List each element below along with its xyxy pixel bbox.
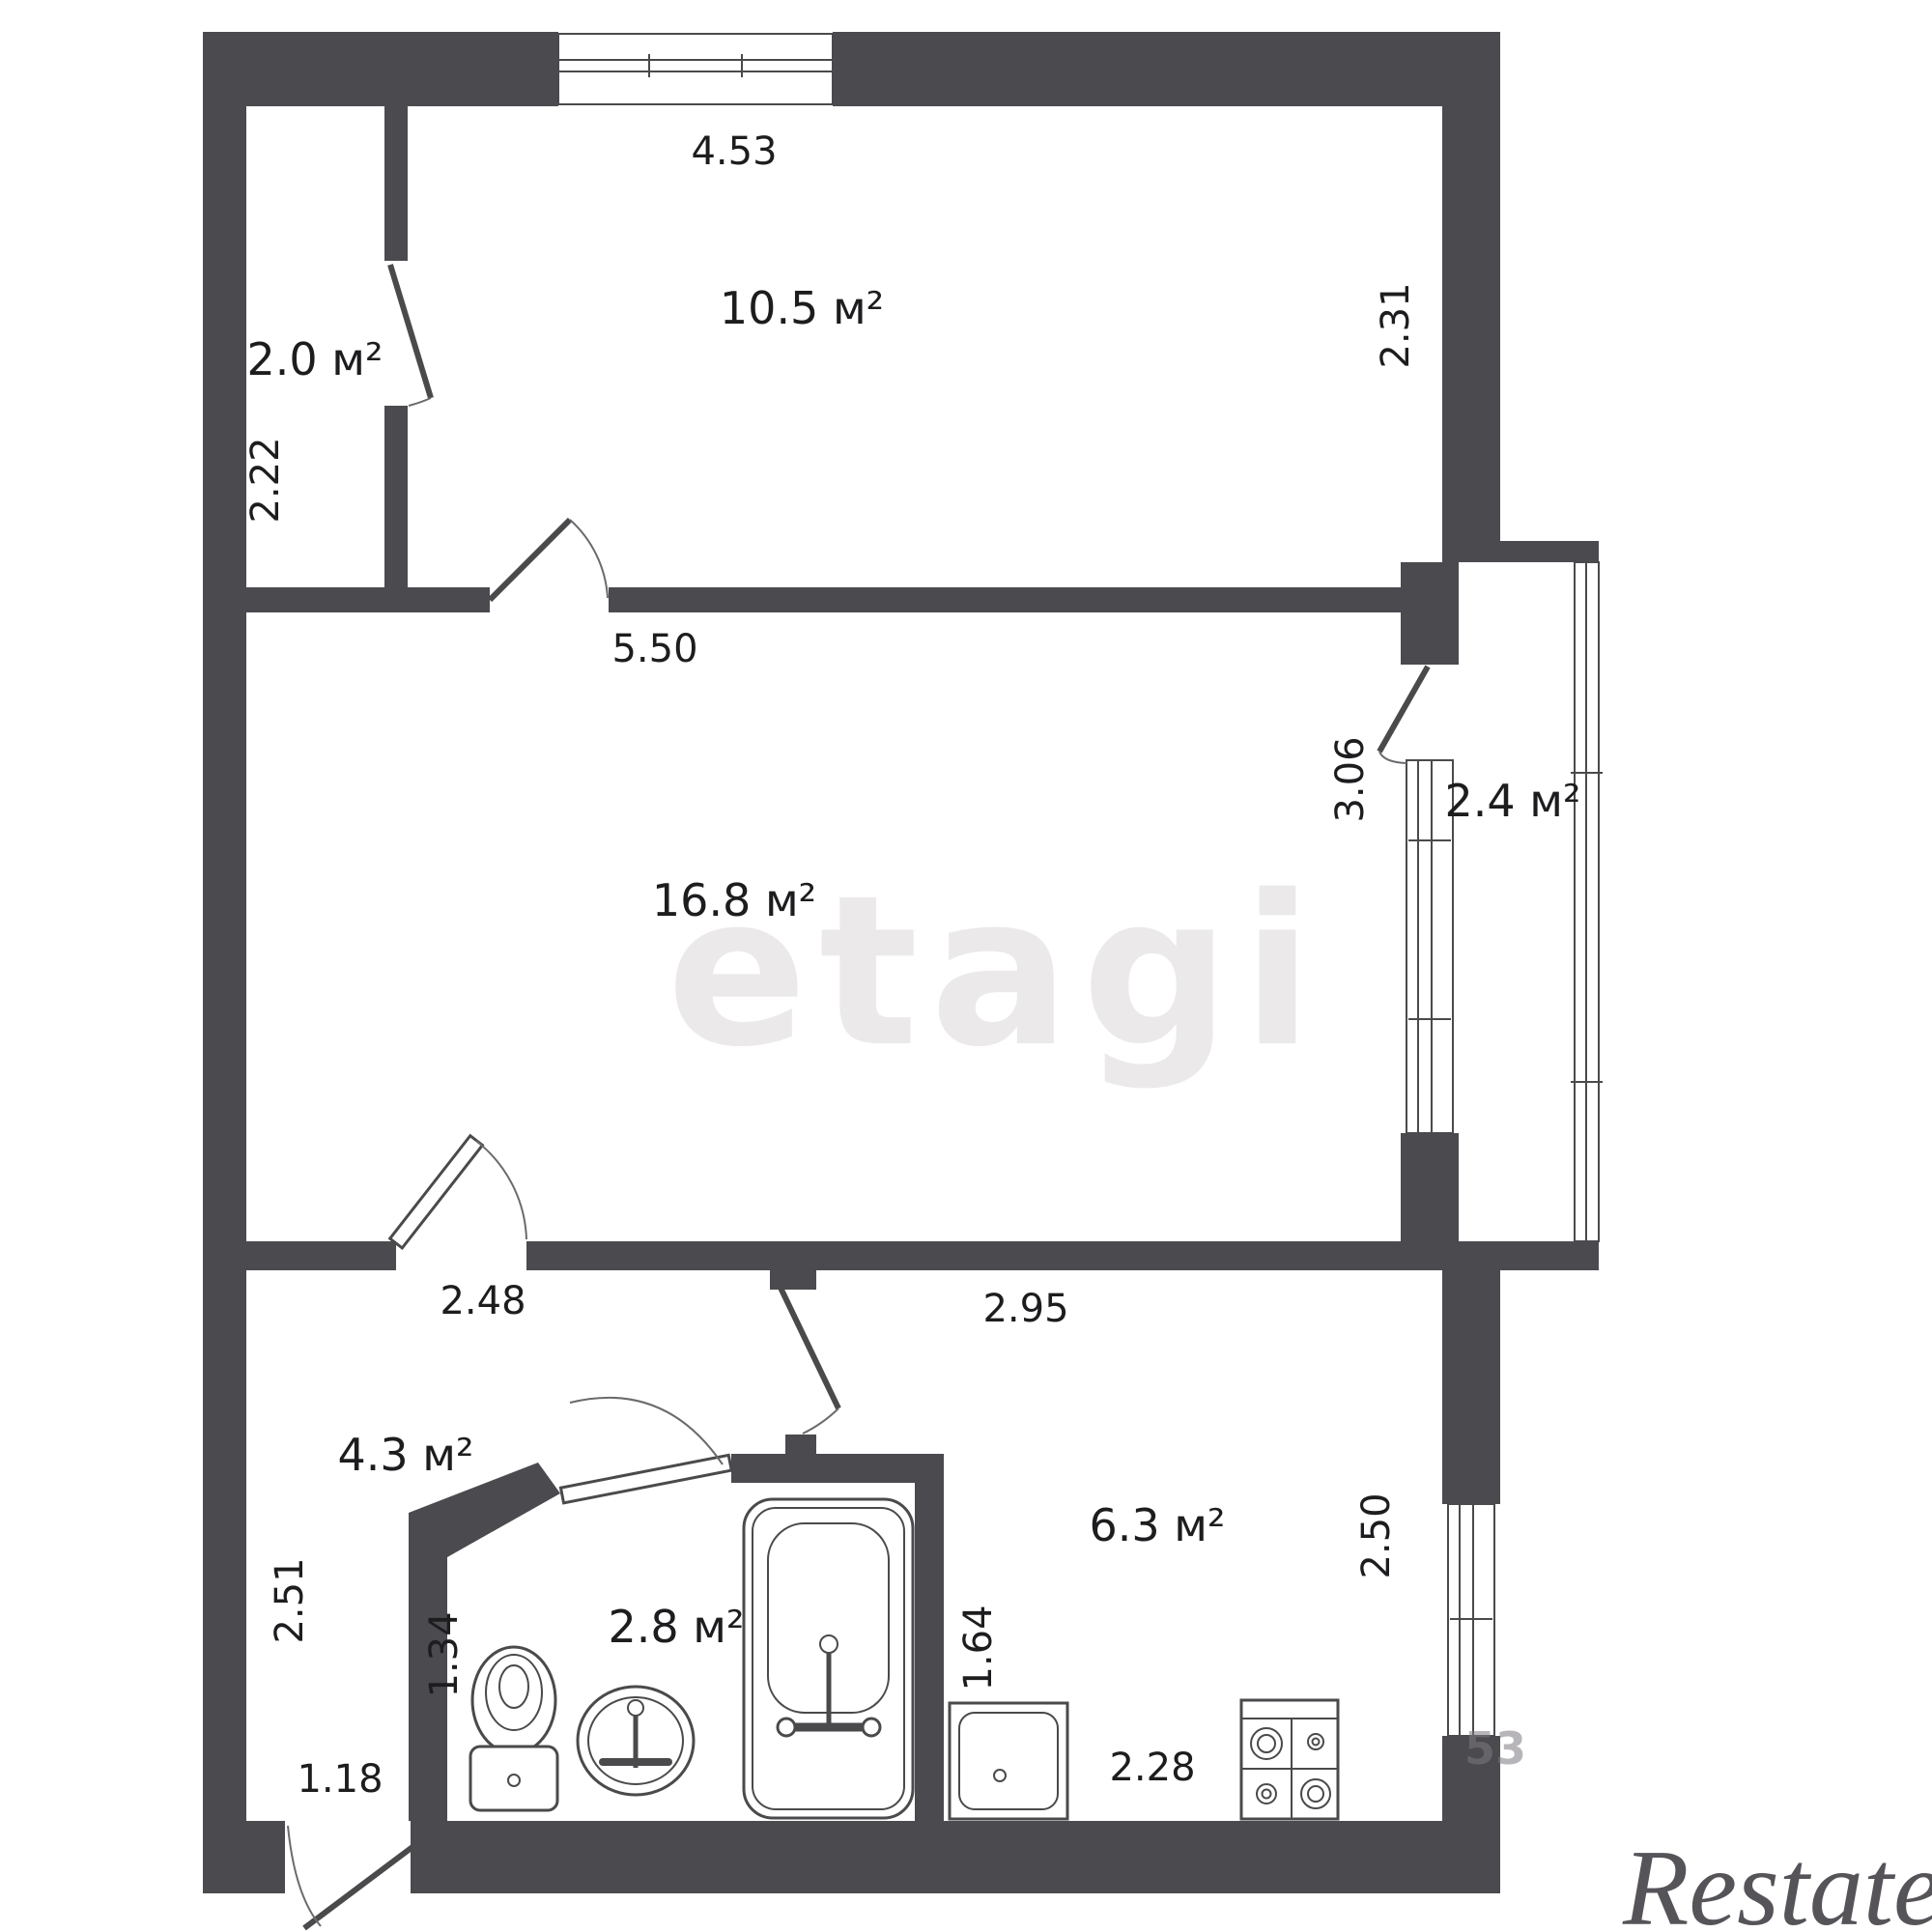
wall-right-exterior-upper [1442, 32, 1500, 562]
wall-closet-divider-lower [384, 406, 408, 587]
wall-kitchen-right-upper [1442, 1270, 1500, 1504]
wall-bottom-left [203, 1821, 285, 1893]
bathtub-icon [744, 1499, 913, 1818]
wall-top-left-segment [203, 32, 558, 106]
room-label-balcony: 2.4 м² [1445, 775, 1581, 827]
watermark-digits: 53 [1464, 1722, 1526, 1775]
dim-hall-left-height: 2.51 [268, 1557, 312, 1643]
floor-plan: etagi [0, 0, 1932, 1932]
wall-closet-divider-upper [384, 106, 408, 261]
dim-living-width: 5.50 [611, 627, 697, 671]
wall-balcony-pillar-lower [1401, 1133, 1459, 1241]
wall-mid2-right [526, 1241, 1456, 1270]
wall-balcony-pillar-upper [1401, 562, 1459, 665]
dim-kitchen-right-height: 2.50 [1354, 1492, 1399, 1578]
wall-mid1-right [609, 587, 1456, 612]
dim-top-width: 4.53 [691, 129, 777, 174]
room-label-living: 16.8 м² [652, 874, 816, 926]
dim-entrance-width: 1.18 [297, 1757, 383, 1802]
dim-bedroom-right: 2.31 [1374, 282, 1418, 368]
wall-mid2-left [246, 1241, 396, 1270]
wall-bottom-main [411, 1821, 1500, 1893]
dim-kitchen-left-height: 1.64 [956, 1605, 1001, 1690]
kitchen-sink-icon [950, 1703, 1067, 1819]
room-label-bathroom: 2.8 м² [609, 1601, 745, 1653]
wall-bathroom-right [915, 1483, 944, 1821]
dim-closet-height: 2.22 [243, 437, 288, 523]
washbasin-icon [578, 1687, 694, 1795]
room-label-closet: 2.0 м² [247, 333, 384, 385]
toilet-icon [470, 1647, 557, 1810]
wall-top-right-segment [833, 32, 1500, 106]
room-label-bedroom: 10.5 м² [720, 282, 884, 334]
wall-balcony-top [1442, 541, 1599, 562]
wall-bathroom-top [731, 1454, 944, 1483]
wall-kitchen-door-stub [770, 1270, 816, 1290]
wall-left-exterior [203, 32, 246, 1893]
watermark-restate: Restate [1622, 1829, 1932, 1932]
wall-balcony-bottom [1456, 1241, 1599, 1270]
window-balcony-glazing-icon [1571, 562, 1603, 1241]
dim-kitchen-top-width: 2.95 [982, 1287, 1068, 1331]
stove-icon [1241, 1700, 1338, 1819]
wall-bathroom-stub [785, 1435, 816, 1454]
dim-hall-inner-height: 1.34 [422, 1611, 467, 1697]
dim-kitchen-bottom-width: 2.28 [1109, 1746, 1195, 1790]
room-label-hall: 4.3 м² [338, 1429, 474, 1481]
dim-hall-width: 2.48 [440, 1279, 526, 1323]
wall-mid1-left [246, 587, 490, 612]
room-label-kitchen: 6.3 м² [1090, 1499, 1226, 1551]
dim-living-right: 3.06 [1328, 736, 1373, 822]
